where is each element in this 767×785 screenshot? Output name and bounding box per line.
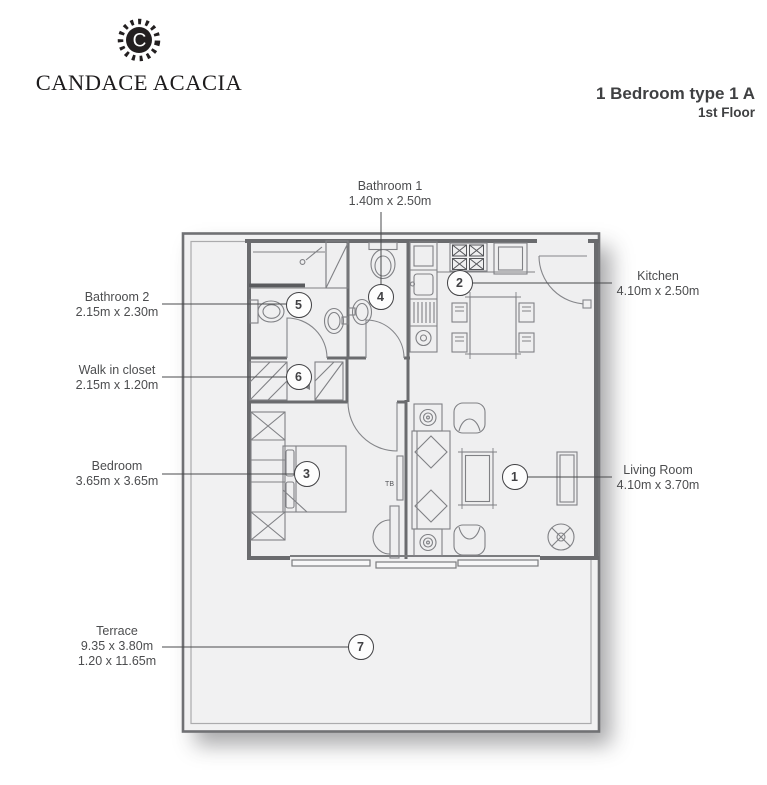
marker-walk-in-closet: 6 [286, 364, 312, 390]
room-name: Bathroom 2 [36, 290, 198, 305]
label-walk-in-closet: Walk in closet 2.15m x 1.20m [36, 363, 198, 393]
room-dims: 9.35 x 3.80m [36, 639, 198, 654]
room-name: Terrace [36, 624, 198, 639]
marker-terrace: 7 [348, 634, 374, 660]
marker-living-room: 1 [502, 464, 528, 490]
room-name: Bedroom [36, 459, 198, 474]
label-terrace: Terrace 9.35 x 3.80m 1.20 x 11.65m [36, 624, 198, 669]
room-dims: 3.65m x 3.65m [36, 474, 198, 489]
room-dims: 4.10m x 3.70m [594, 478, 722, 493]
floor-plan-page: C CANDACE ACACIA 1 Bedroom type 1 A 1st … [0, 0, 767, 785]
tv-label: TB [385, 481, 394, 488]
room-dims: 4.10m x 2.50m [594, 284, 722, 299]
room-dims: 2.15m x 2.30m [36, 305, 198, 320]
marker-kitchen: 2 [447, 270, 473, 296]
label-bathroom-2: Bathroom 2 2.15m x 2.30m [36, 290, 198, 320]
room-name: Living Room [594, 463, 722, 478]
label-kitchen: Kitchen 4.10m x 2.50m [594, 269, 722, 299]
marker-bedroom: 3 [294, 461, 320, 487]
label-bathroom-1: Bathroom 1 1.40m x 2.50m [320, 179, 460, 209]
room-name: Walk in closet [36, 363, 198, 378]
marker-bathroom-1: 4 [368, 284, 394, 310]
label-living-room: Living Room 4.10m x 3.70m [594, 463, 722, 493]
room-dims: 2.15m x 1.20m [36, 378, 198, 393]
label-bedroom: Bedroom 3.65m x 3.65m [36, 459, 198, 489]
room-dims-2: 1.20 x 11.65m [36, 654, 198, 669]
marker-bathroom-2: 5 [286, 292, 312, 318]
room-name: Bathroom 1 [320, 179, 460, 194]
room-dims: 1.40m x 2.50m [320, 194, 460, 209]
room-name: Kitchen [594, 269, 722, 284]
